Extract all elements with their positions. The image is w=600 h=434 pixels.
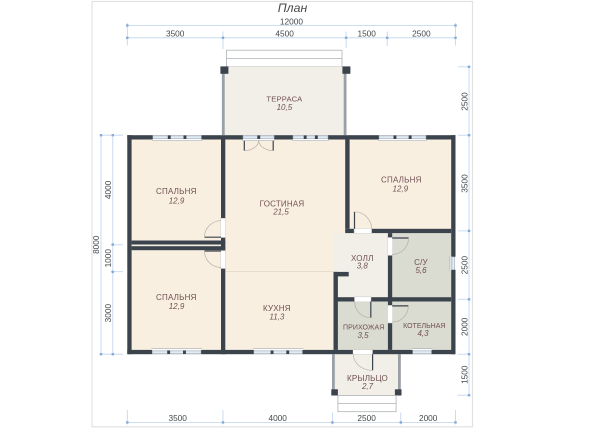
svg-text:2000: 2000: [460, 317, 470, 336]
svg-text:План: План: [278, 1, 308, 15]
svg-text:1000: 1000: [103, 249, 113, 268]
svg-text:4,3: 4,3: [417, 329, 429, 338]
svg-text:4000: 4000: [268, 413, 287, 423]
svg-text:3500: 3500: [166, 29, 185, 39]
svg-text:3,5: 3,5: [357, 331, 369, 340]
svg-text:5,6: 5,6: [415, 266, 427, 275]
svg-text:3500: 3500: [460, 174, 470, 193]
svg-text:3000: 3000: [103, 303, 113, 322]
svg-text:2500: 2500: [460, 92, 470, 111]
svg-text:ТЕРРАСА: ТЕРРАСА: [266, 95, 303, 104]
svg-text:СПАЛЬНЯ: СПАЛЬНЯ: [381, 175, 422, 184]
svg-text:12000: 12000: [280, 16, 303, 26]
svg-text:4000: 4000: [103, 180, 113, 199]
svg-text:2000: 2000: [419, 413, 438, 423]
svg-text:21,5: 21,5: [272, 207, 289, 216]
svg-text:3500: 3500: [168, 413, 187, 423]
svg-text:1500: 1500: [460, 365, 470, 384]
svg-text:СПАЛЬНЯ: СПАЛЬНЯ: [156, 187, 197, 196]
svg-text:2500: 2500: [357, 413, 376, 423]
svg-text:11,3: 11,3: [269, 312, 285, 321]
svg-text:12,9: 12,9: [169, 302, 185, 311]
svg-text:12,9: 12,9: [169, 197, 185, 206]
svg-text:12,9: 12,9: [393, 185, 409, 194]
svg-text:2500: 2500: [412, 29, 431, 39]
svg-text:8000: 8000: [91, 235, 101, 254]
svg-text:10,5: 10,5: [277, 103, 293, 112]
svg-text:СПАЛЬНЯ: СПАЛЬНЯ: [156, 293, 197, 302]
svg-text:3,8: 3,8: [357, 261, 369, 270]
svg-text:1500: 1500: [357, 29, 376, 39]
svg-text:4500: 4500: [275, 29, 294, 39]
svg-text:2500: 2500: [460, 255, 470, 274]
svg-text:2,7: 2,7: [361, 382, 374, 391]
